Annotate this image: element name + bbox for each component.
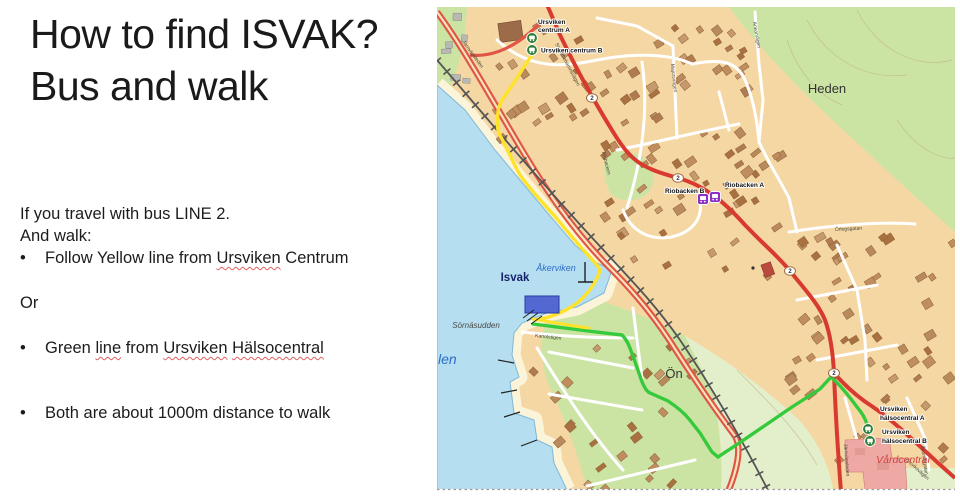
map-svg: Järnvägsleden Skelleftehamnsvägen Riobac… [437, 0, 955, 502]
bullet-distance-text: Both are about 1000m distance to walk [45, 402, 330, 424]
label-akerviken: Åkerviken [535, 263, 576, 273]
svg-text:Örlogsgatan: Örlogsgatan [835, 225, 863, 233]
svg-text:Ursviken: Ursviken [880, 406, 907, 413]
building [463, 78, 471, 83]
intro-line-2: And walk: [20, 225, 430, 247]
map-image: Järnvägsleden Skelleftehamnsvägen Riobac… [437, 0, 955, 502]
building [453, 13, 462, 20]
map-top-margin [437, 0, 955, 7]
svg-text:hälsocentral B: hälsocentral B [882, 438, 927, 445]
building [445, 41, 452, 48]
svg-text:Ursviken: Ursviken [538, 19, 565, 26]
svg-text:Ursviken: Ursviken [882, 429, 909, 436]
bullet-distance: • Both are about 1000m distance to walk [20, 402, 430, 424]
page-title: How to find ISVAK? Bus and walk [30, 8, 378, 112]
label-on: Ön [665, 366, 682, 381]
label-isvak: Isvak [501, 272, 530, 284]
bullet-yellow-line: • Follow Yellow line from Ursviken Centr… [20, 247, 430, 269]
title-line-2: Bus and walk [30, 63, 268, 109]
bullet-green-line: • Green line from Ursviken Hälsocentral [20, 337, 430, 359]
slide-body: If you travel with bus LINE 2. And walk:… [20, 203, 430, 424]
poi-dot [751, 266, 754, 269]
label-fjarden: len [438, 351, 457, 367]
bus-stop-icon [698, 194, 709, 205]
svg-text:hälsocentral A: hälsocentral A [880, 415, 925, 422]
bus-stop-icon [865, 436, 876, 447]
bullet-green-text: Green line from Ursviken Hälsocentral [45, 337, 324, 359]
svg-text:Riobacken A: Riobacken A [725, 182, 764, 189]
spellcheck-word: Ursviken [217, 249, 281, 267]
label-heden: Heden [808, 81, 846, 96]
bus-stop-icon [527, 33, 538, 44]
bus-stop-icon [710, 192, 721, 203]
intro-line-1: If you travel with bus LINE 2. [20, 203, 430, 225]
bus-stop-icon [527, 45, 538, 56]
text-pane: How to find ISVAK? Bus and walk If you t… [0, 0, 437, 502]
bullet-yellow-text: Follow Yellow line from Ursviken Centrum [45, 247, 349, 269]
map-bottom-margin [437, 489, 955, 502]
title-line-1: How to find ISVAK? [30, 11, 378, 57]
label-vardcentral: Vårdcentral [876, 454, 930, 466]
slide: How to find ISVAK? Bus and walk If you t… [0, 0, 960, 502]
bullet-icon: • [20, 402, 45, 424]
label-sornasudden: Sörnäsudden [452, 321, 500, 330]
svg-text:centrum A: centrum A [538, 27, 570, 34]
bullet-icon: • [20, 247, 45, 269]
svg-text:Riobacken B: Riobacken B [665, 188, 705, 195]
bus-stop-icon [863, 424, 874, 435]
or-text: Or [20, 292, 430, 314]
svg-text:Ursviken centrum B: Ursviken centrum B [541, 48, 603, 55]
building [441, 49, 451, 54]
bullet-icon: • [20, 337, 45, 359]
